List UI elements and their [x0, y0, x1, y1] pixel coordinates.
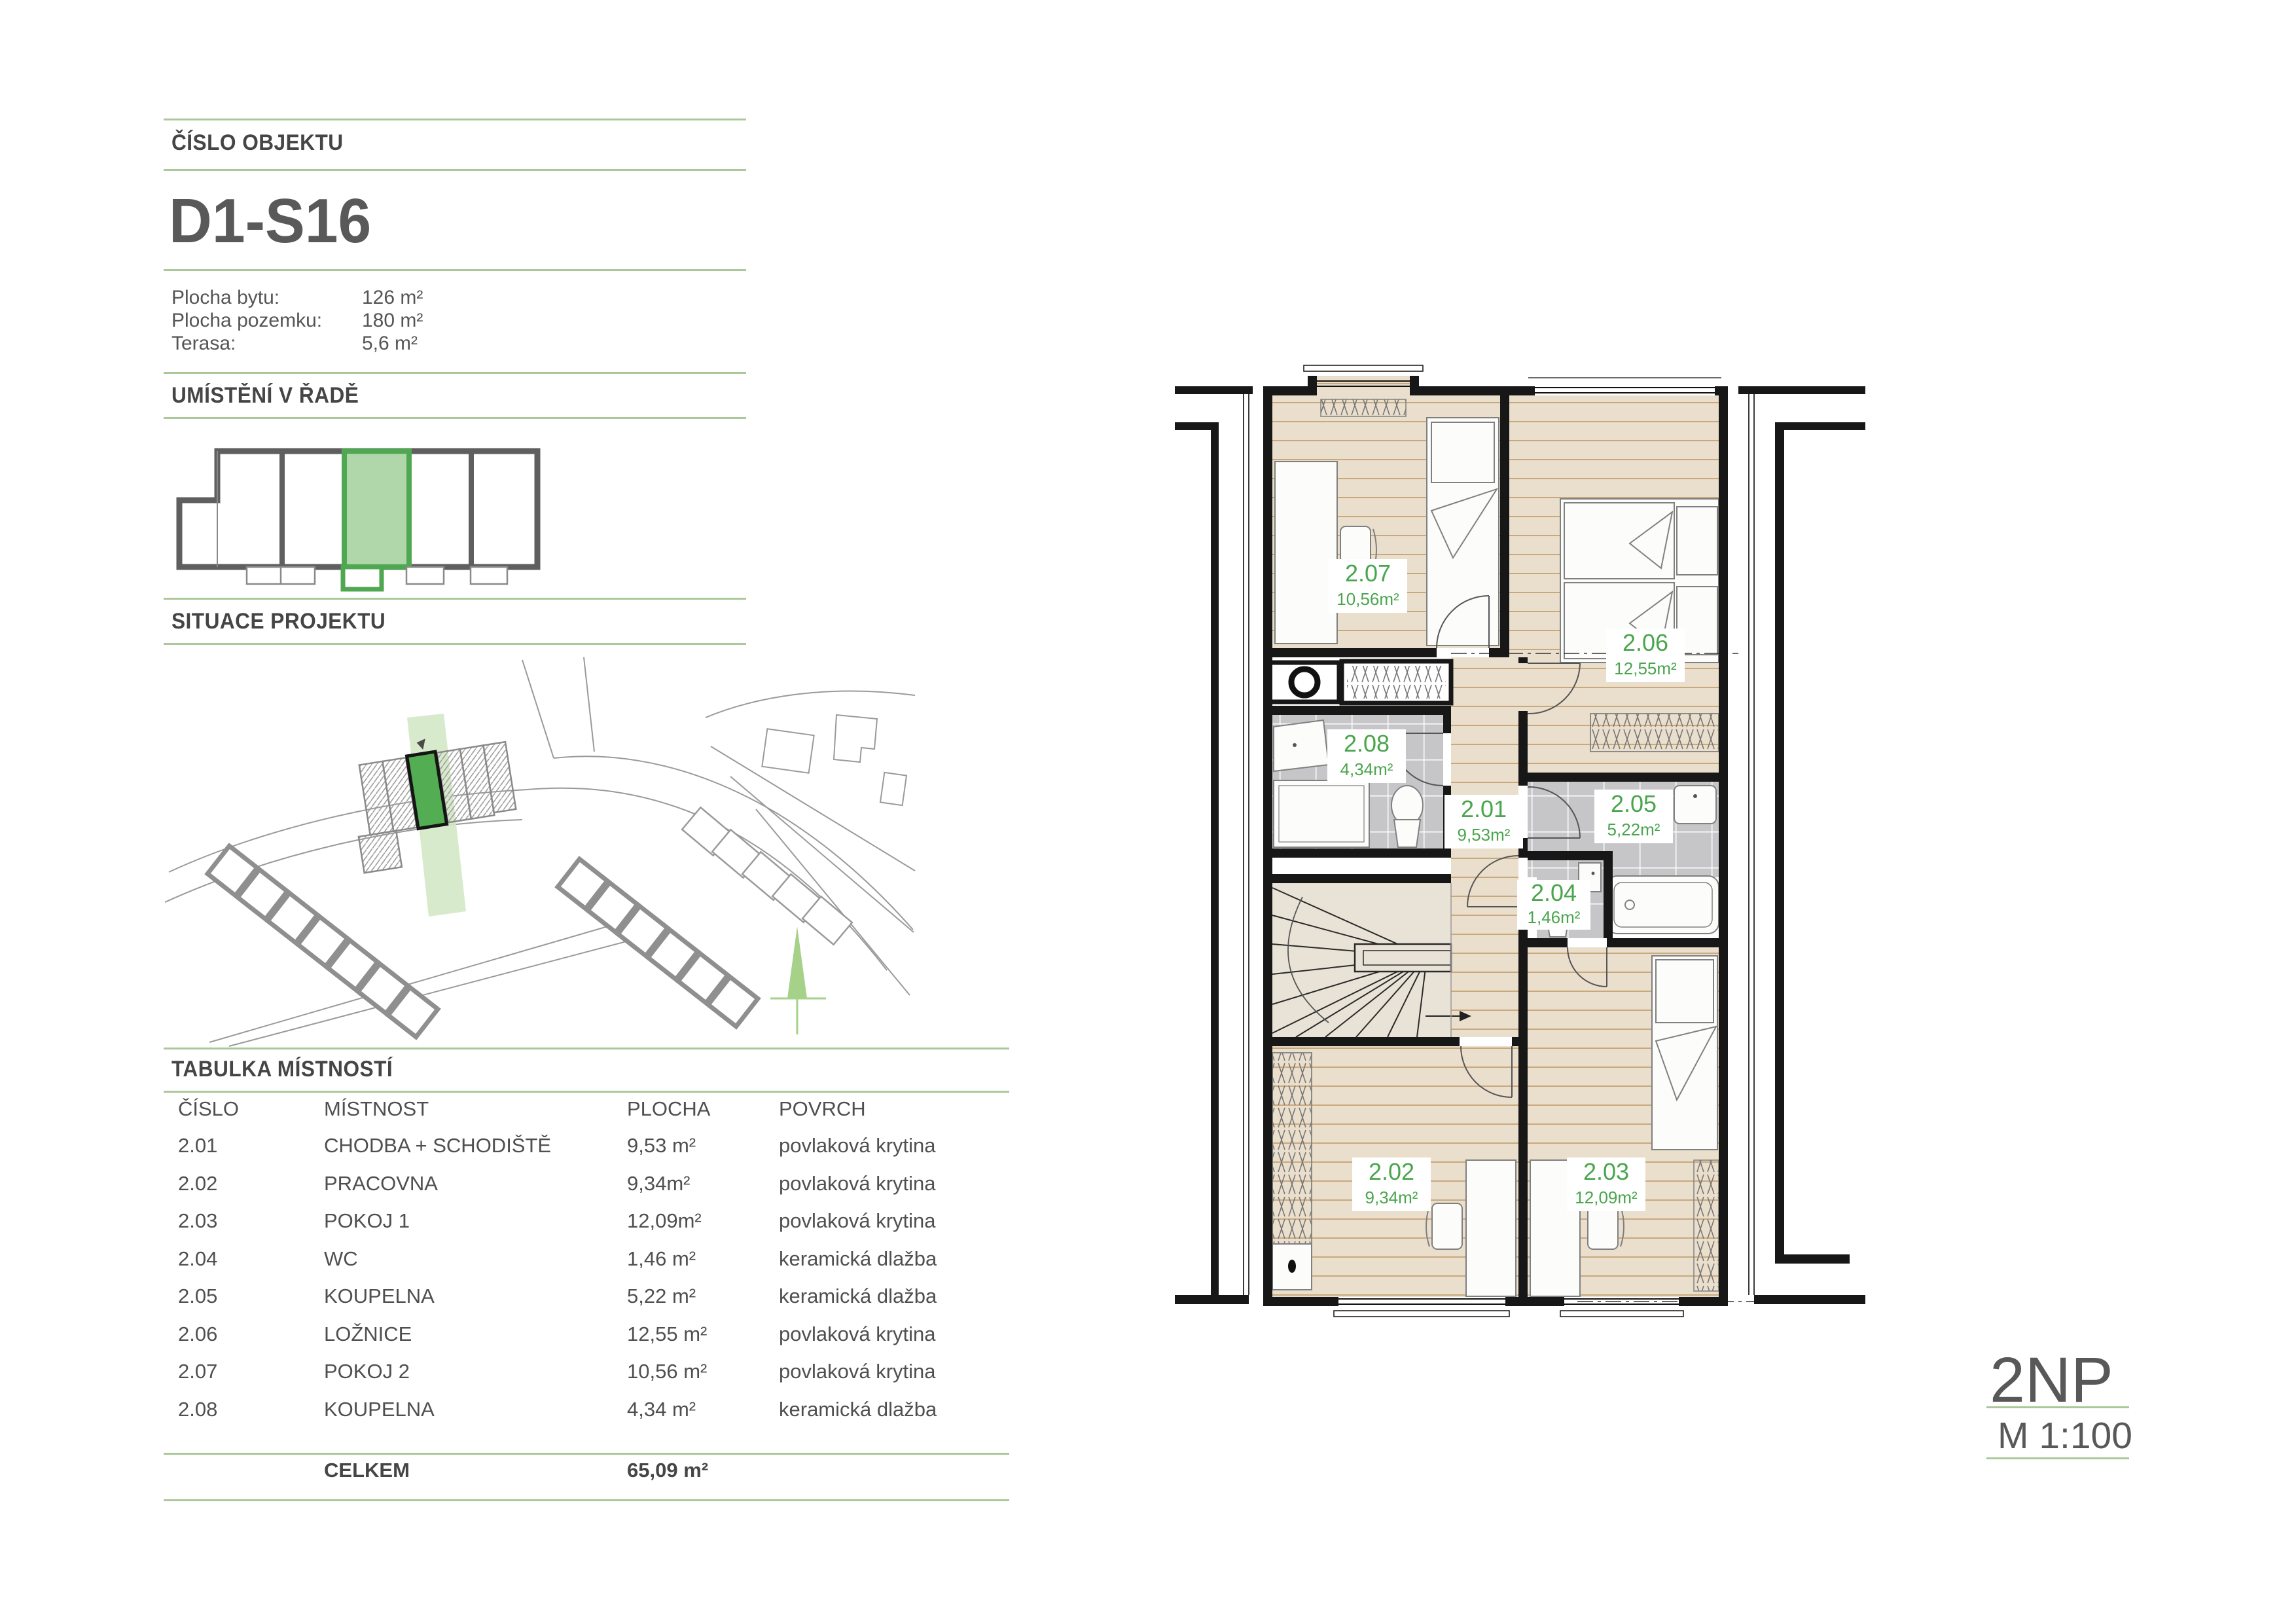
cell-povrch: keramická dlažba	[779, 1285, 937, 1308]
site-map	[164, 655, 916, 1048]
room-label: 2.08	[1344, 730, 1390, 757]
total-value: 65,09 m²	[627, 1459, 708, 1482]
room-label: 2.02	[1369, 1158, 1414, 1185]
cell-mistnost: PRACOVNA	[324, 1172, 438, 1195]
room-label: 2.01	[1461, 795, 1507, 822]
pillow	[1677, 507, 1717, 575]
divider	[164, 269, 746, 271]
sink	[1274, 720, 1329, 771]
cell-cislo: 2.03	[178, 1209, 217, 1233]
desk	[1275, 462, 1337, 644]
scale-label: M 1:100	[1998, 1414, 2132, 1457]
map-house-chain-left	[207, 846, 438, 1037]
cell-plocha: 9,34m²	[627, 1172, 690, 1195]
tree-north-marker-icon	[770, 926, 826, 1034]
stat-label: Plocha bytu:	[171, 287, 279, 309]
stat-value: 126 m²	[362, 287, 423, 309]
cell-mistnost: POKOJ 1	[324, 1209, 410, 1233]
cell-povrch: povlaková krytina	[779, 1360, 936, 1383]
room-area-label: 9,34m²	[1365, 1188, 1418, 1207]
room-label: 2.04	[1531, 879, 1577, 906]
room-label: 2.07	[1345, 560, 1391, 587]
cell-povrch: keramická dlažba	[779, 1247, 937, 1271]
row-position-diagram	[166, 432, 558, 596]
divider	[164, 643, 746, 645]
table-row: 2.03 POKOJ 1 12,09m² povlaková krytina	[0, 1209, 1113, 1237]
room-area-label: 1,46m²	[1528, 907, 1581, 927]
flue-icon	[1288, 1260, 1296, 1273]
header-cislo: ČÍSLO	[178, 1097, 239, 1121]
window-sill	[1560, 1311, 1683, 1317]
divider	[164, 1091, 1009, 1093]
cell-povrch: povlaková krytina	[779, 1172, 936, 1195]
total-label: CELKEM	[324, 1459, 410, 1482]
room-label: 2.05	[1611, 790, 1657, 817]
cell-cislo: 2.01	[178, 1134, 217, 1158]
cell-cislo: 2.04	[178, 1247, 217, 1271]
divider	[164, 119, 746, 120]
section-title-site-plan: SITUACE PROJEKTU	[171, 609, 386, 634]
table-header: ČÍSLO MÍSTNOST PLOCHA POVRCH	[0, 1097, 1113, 1125]
table-row: 2.01 CHODBA + SCHODIŠTĚ 9,53 m² povlakov…	[0, 1134, 1113, 1161]
window-sill	[1304, 365, 1423, 371]
table-row: 2.08 KOUPELNA 4,34 m² keramická dlažba	[0, 1398, 1113, 1425]
stat-value: 180 m²	[362, 310, 423, 332]
wardrobe	[1590, 714, 1719, 752]
wall	[1719, 386, 1728, 1306]
cell-povrch: povlaková krytina	[779, 1209, 936, 1233]
divider	[164, 169, 746, 171]
floor-plan: 2.07 10,56m² 2.06 12,55m² 2.08 4,34m² 2.…	[1172, 327, 1869, 1349]
table-row: 2.02 PRACOVNA 9,34m² povlaková krytina	[0, 1172, 1113, 1199]
wall	[1263, 386, 1272, 1306]
cell-cislo: 2.07	[178, 1360, 217, 1383]
room-area-label: 12,55m²	[1614, 659, 1677, 678]
highlighted-unit	[344, 451, 409, 567]
room-area-label: 10,56m²	[1336, 589, 1399, 609]
cell-plocha: 10,56 m²	[627, 1360, 707, 1383]
cell-mistnost: POKOJ 2	[324, 1360, 410, 1383]
divider	[164, 1453, 1009, 1455]
cell-plocha: 5,22 m²	[627, 1285, 696, 1308]
divider	[164, 417, 746, 419]
room-area-label: 12,09m²	[1575, 1188, 1638, 1207]
room-label: 2.06	[1623, 629, 1668, 656]
highlighted-terrace	[343, 567, 382, 589]
table-row: 2.06 LOŽNICE 12,55 m² povlaková krytina	[0, 1322, 1113, 1350]
bathtub	[1607, 876, 1719, 934]
cell-plocha: 12,09m²	[627, 1209, 702, 1233]
chair	[1432, 1203, 1462, 1249]
divider	[164, 1048, 1009, 1049]
cell-plocha: 9,53 m²	[627, 1134, 696, 1158]
object-id: D1-S16	[169, 185, 371, 257]
divider	[1986, 1406, 2129, 1408]
cell-plocha: 12,55 m²	[627, 1322, 707, 1346]
wardrobe	[1272, 1053, 1312, 1244]
room-area-label: 4,34m²	[1340, 759, 1393, 779]
cell-cislo: 2.08	[178, 1398, 217, 1421]
cell-mistnost: CHODBA + SCHODIŠTĚ	[324, 1134, 551, 1158]
room-area-label: 5,22m²	[1607, 820, 1660, 839]
header-povrch: POVRCH	[779, 1097, 866, 1121]
pillow	[1656, 960, 1713, 1023]
cell-mistnost: KOUPELNA	[324, 1285, 435, 1308]
table-row: 2.04 WC 1,46 m² keramická dlažba	[0, 1247, 1113, 1275]
header-mistnost: MÍSTNOST	[324, 1097, 429, 1121]
cell-mistnost: KOUPELNA	[324, 1398, 435, 1421]
niche	[1270, 661, 1451, 703]
room-label: 2.03	[1583, 1158, 1629, 1185]
radiator	[1321, 399, 1406, 416]
divider	[1986, 1457, 2129, 1459]
section-title-room-table: TABULKA MÍSTNOSTÍ	[171, 1057, 393, 1082]
stat-value: 5,6 m²	[362, 333, 418, 355]
section-title-row-position: UMÍSTĚNÍ V ŘADĚ	[171, 383, 359, 409]
radiator	[1694, 1160, 1719, 1291]
table-row: 2.05 KOUPELNA 5,22 m² keramická dlažba	[0, 1285, 1113, 1312]
stat-label: Terasa:	[171, 333, 236, 355]
table-row: 2.07 POKOJ 2 10,56 m² povlaková krytina	[0, 1360, 1113, 1387]
sink	[1674, 786, 1716, 824]
cell-cislo: 2.02	[178, 1172, 217, 1195]
cell-mistnost: WC	[324, 1247, 358, 1271]
cell-plocha: 1,46 m²	[627, 1247, 696, 1271]
divider	[164, 1499, 1009, 1501]
cell-plocha: 4,34 m²	[627, 1398, 696, 1421]
window-sill	[1334, 1311, 1509, 1317]
header-plocha: PLOCHA	[627, 1097, 710, 1121]
desk	[1466, 1160, 1516, 1296]
cell-cislo: 2.05	[178, 1285, 217, 1308]
divider	[164, 372, 746, 374]
cell-povrch: povlaková krytina	[779, 1322, 936, 1346]
section-title-object-number: ČÍSLO OBJEKTU	[171, 130, 344, 156]
map-house-chain-middle	[558, 859, 758, 1027]
pillow	[1431, 422, 1494, 483]
map-house-chain-right	[682, 807, 852, 945]
shower	[1274, 780, 1369, 847]
cell-povrch: keramická dlažba	[779, 1398, 937, 1421]
cell-cislo: 2.06	[178, 1322, 217, 1346]
flue-icon	[1291, 669, 1318, 695]
table-total-row: CELKEM 65,09 m²	[0, 1459, 1113, 1486]
cell-mistnost: LOŽNICE	[324, 1322, 412, 1346]
plan-sheet: ČÍSLO OBJEKTU D1-S16 Plocha bytu: 126 m²…	[0, 0, 2296, 1623]
divider	[164, 598, 746, 600]
stat-label: Plocha pozemku:	[171, 310, 322, 332]
room-area-label: 9,53m²	[1458, 825, 1511, 845]
cell-povrch: povlaková krytina	[779, 1134, 936, 1158]
